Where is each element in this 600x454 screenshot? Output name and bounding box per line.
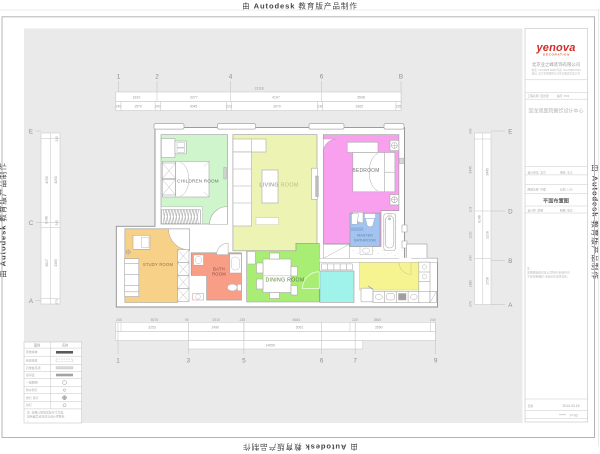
svg-text:230: 230 [317,105,323,109]
svg-text:BATHROOM: BATHROOM [354,239,376,243]
svg-text:1190: 1190 [469,231,473,238]
svg-text:制图: 张立: 制图: 张立 [560,208,573,212]
svg-text:2310: 2310 [212,318,220,322]
svg-text:BEDROOM: BEDROOM [352,168,379,174]
svg-text:240: 240 [55,136,59,142]
svg-text:图纸名称: 平面: 图纸名称: 平面 [528,188,547,192]
svg-text:4055: 4055 [45,176,49,184]
svg-text:MASTER: MASTER [357,234,373,238]
svg-text:240: 240 [155,105,161,109]
svg-text:B: B [399,74,403,81]
svg-text:3590: 3590 [375,325,383,329]
svg-text:3617: 3617 [45,259,49,267]
svg-text:4563: 4563 [293,318,301,322]
svg-text:工程名称: 回龙观: 工程名称: 回龙观 [528,94,549,98]
svg-text:STUDY ROOM: STUDY ROOM [143,262,174,267]
svg-text:3: 3 [187,358,191,365]
svg-text:13118: 13118 [254,87,264,91]
svg-text:如有差异请及时与设计师联系: 如有差异请及时与设计师联系 [27,414,65,419]
svg-text:D: D [508,209,513,216]
svg-text:6: 6 [320,74,324,81]
svg-text:3445: 3445 [469,166,473,174]
svg-text:240: 240 [430,318,436,322]
svg-text:9: 9 [434,358,438,365]
svg-text:回龙观医院餐饮设计中心: 回龙观医院餐饮设计中心 [528,108,583,115]
svg-text:由 Autodesk 教育版产品制作: 由 Autodesk 教育版产品制作 [0,162,8,278]
svg-text:3560: 3560 [374,318,382,322]
svg-text:比例: 1:50: 比例: 1:50 [560,188,573,192]
svg-text:3365: 3365 [54,259,58,267]
svg-text:14655: 14655 [265,343,275,347]
svg-text:5091: 5091 [296,325,304,329]
svg-text:1: 1 [117,74,121,81]
svg-text:壁灯 吊灯: 壁灯 吊灯 [26,395,38,400]
svg-text:8148: 8148 [477,215,481,223]
svg-text:石膏板吊顶: 石膏板吊顶 [26,365,41,370]
svg-text:设计师: 李明: 设计师: 李明 [528,208,544,212]
svg-text:射灯: 射灯 [26,402,32,407]
svg-text:220: 220 [352,318,358,322]
svg-text:2490: 2490 [212,325,220,329]
svg-text:图例: 图例 [34,342,40,347]
svg-text:2208: 2208 [485,231,489,239]
svg-text:223: 223 [226,105,232,109]
svg-text:电话: 010-8488 6688 传真: 010-8488: 电话: 010-8488 6688 传真: 010-8488 6699 [532,68,581,72]
svg-text:ROOM: ROOM [212,272,226,277]
svg-text:90: 90 [185,318,189,322]
svg-text:5070: 5070 [151,318,159,322]
svg-text:地址: 北京市朝阳区东三环北路霞光里18号: 地址: 北京市朝阳区东三环北路霞光里18号 [532,72,581,76]
svg-text:103: 103 [469,207,473,213]
svg-text:4: 4 [229,74,233,81]
svg-text:DECORATION: DECORATION [543,53,570,57]
svg-text:3365: 3365 [356,105,364,109]
svg-text:235: 235 [396,105,402,109]
svg-text:C: C [29,220,34,227]
svg-text:273: 273 [55,299,59,305]
svg-text:240: 240 [116,318,122,322]
svg-text:窗帘盒: 窗帘盒 [26,372,35,377]
svg-text:日期: 日期 [528,404,534,408]
svg-text:防水筒灯: 防水筒灯 [26,387,38,392]
svg-text:2014.03.15: 2014.03.15 [563,404,580,408]
svg-text:平面布置图: 平面布置图 [543,196,569,204]
svg-text:1: 1 [116,358,120,365]
svg-text:不得复制翻印 违者追究法律责任。: 不得复制翻印 违者追究法律责任。 [527,275,570,279]
svg-text:新建墙体: 新建墙体 [26,357,38,362]
svg-text:3253: 3253 [148,325,156,329]
svg-text:审核: 王工: 审核: 王工 [560,171,573,175]
svg-text:CHILDREN ROOM: CHILDREN ROOM [177,179,219,184]
svg-text:E: E [29,129,33,136]
svg-text:235: 235 [239,318,245,322]
svg-text:名称: 名称 [62,342,69,347]
svg-text:4197: 4197 [272,95,280,99]
svg-text:3277: 3277 [190,95,198,99]
svg-text:240: 240 [116,105,122,109]
svg-text:5: 5 [242,358,246,365]
svg-text:P-03: P-03 [570,413,578,417]
svg-text:LIVING ROOM: LIVING ROOM [259,183,298,189]
svg-text:由 Autodesk 教育版产品制作: 由 Autodesk 教育版产品制作 [242,1,358,11]
svg-text:B: B [508,258,512,265]
svg-text:一般照明: 一般照明 [26,380,38,385]
svg-text:E: E [508,129,512,136]
svg-text:2: 2 [155,74,159,81]
svg-text:6: 6 [320,358,324,365]
svg-text:3970: 3970 [273,105,281,109]
svg-text:1570: 1570 [134,105,142,109]
svg-text:由 Autodesk 教育版产品制作: 由 Autodesk 教育版产品制作 [242,442,358,452]
svg-text:编号: P03: 编号: P03 [557,94,570,98]
svg-text:8148: 8148 [45,216,49,224]
svg-text:1880: 1880 [469,280,473,288]
svg-text:1810: 1810 [133,95,141,99]
svg-text:2058: 2058 [485,277,489,285]
svg-text:DINING ROOM: DINING ROOM [265,278,304,284]
svg-text:。: 。 [27,419,30,423]
svg-text:240: 240 [469,128,473,134]
svg-text:3598: 3598 [357,95,365,99]
svg-text:240: 240 [469,255,473,261]
svg-text:设计单位: 北京: 设计单位: 北京 [528,171,547,175]
svg-text:240: 240 [55,220,59,226]
svg-text:北京业之峰装饰有限公司: 北京业之峰装饰有限公司 [532,61,580,68]
svg-text:273: 273 [469,301,473,307]
svg-text:4293: 4293 [54,176,58,184]
svg-text:3045: 3045 [190,105,198,109]
svg-text:原始墙体: 原始墙体 [26,349,38,354]
svg-text:3445: 3445 [485,168,489,176]
svg-text:7: 7 [353,358,357,365]
